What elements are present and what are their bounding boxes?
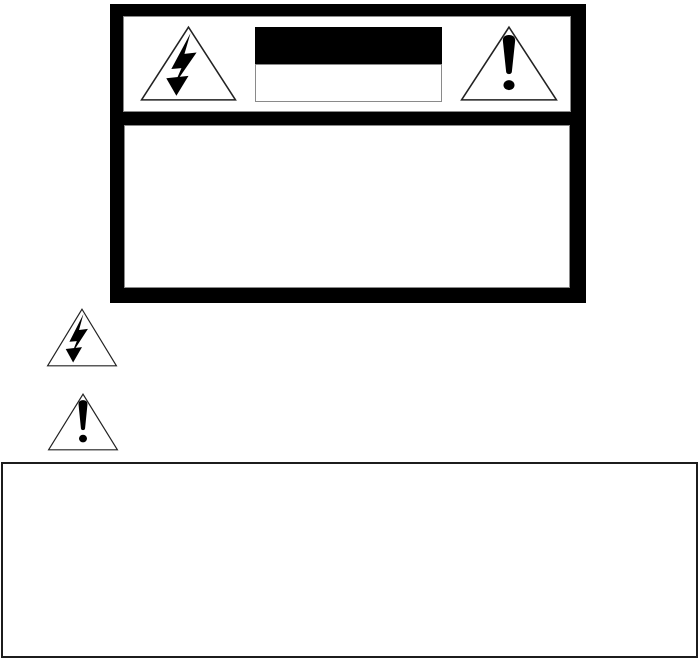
caution-title-band <box>255 27 442 64</box>
warning-header-strip <box>123 16 571 112</box>
high-voltage-lightning-triangle-icon <box>138 23 239 104</box>
exclamation-glyph <box>49 394 118 450</box>
high-voltage-lightning-triangle-icon-small <box>45 306 119 369</box>
lightning-bolt-glyph <box>142 27 236 100</box>
lightning-bolt-glyph <box>48 309 117 366</box>
exclamation-glyph <box>462 27 557 100</box>
notice-box <box>1 462 698 658</box>
warning-panel <box>110 4 586 303</box>
warning-body-panel <box>124 125 570 288</box>
alert-exclamation-triangle-icon-small <box>46 391 120 453</box>
caution-subtitle-band <box>255 64 442 102</box>
document-page <box>0 0 700 661</box>
alert-exclamation-triangle-icon <box>458 23 560 104</box>
caution-label-block <box>255 27 442 102</box>
